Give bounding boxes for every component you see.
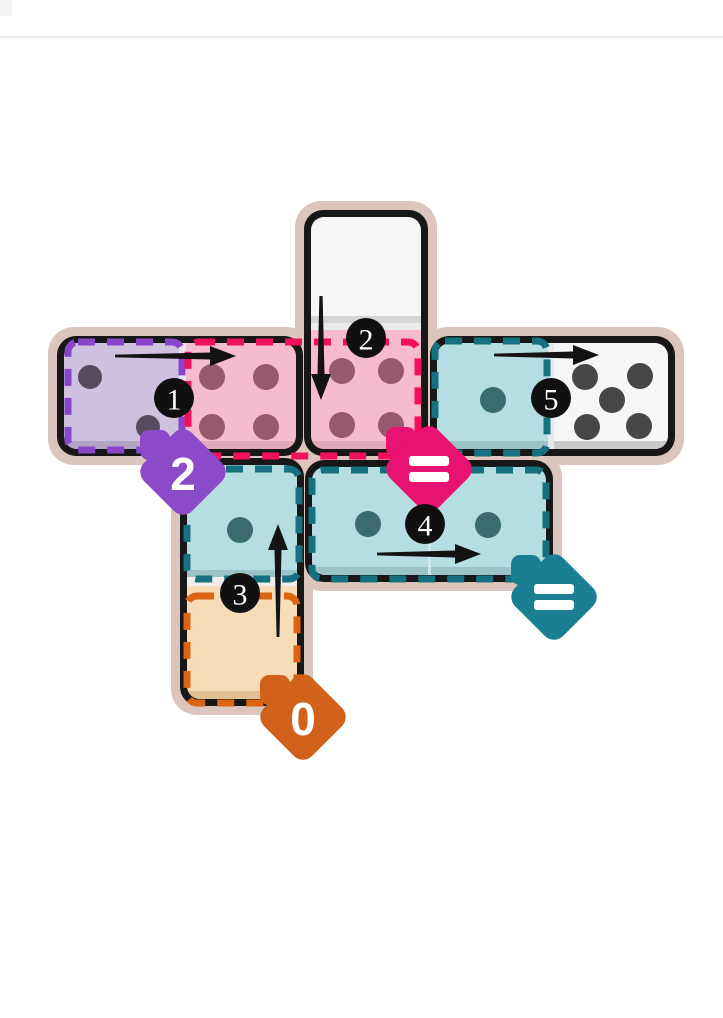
badge-orange-0: 0 — [255, 669, 351, 765]
badge-orange-label: 0 — [290, 693, 316, 745]
pip-teal-1-right — [480, 387, 506, 413]
step-2-number: 2 — [359, 324, 374, 357]
pip-teal-1-middle-right — [475, 512, 501, 538]
step-marker-5: 5 — [531, 378, 571, 418]
pip-teal-1-middle-left — [355, 511, 381, 537]
step-4-number: 4 — [418, 510, 433, 543]
step-marker-2: 2 — [346, 318, 386, 358]
puzzle-board: 2 0 1 2 3 — [0, 0, 723, 1018]
step-marker-1: 1 — [154, 378, 194, 418]
pip-teal-1-bottom — [227, 517, 253, 543]
badge-purple-label: 2 — [170, 448, 196, 500]
step-marker-3: 3 — [220, 573, 260, 613]
step-marker-4: 4 — [405, 504, 445, 544]
step-3-number: 3 — [233, 579, 248, 612]
cell-blank-top — [311, 217, 421, 323]
step-1-number: 1 — [167, 384, 182, 417]
step-5-number: 5 — [544, 384, 559, 417]
badge-teal-equals — [506, 549, 602, 645]
